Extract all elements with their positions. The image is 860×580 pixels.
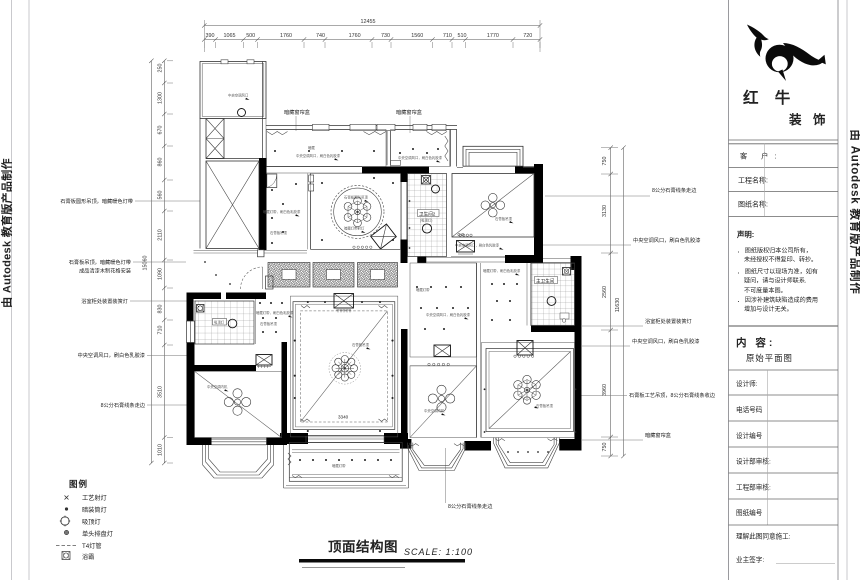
svg-text:8公分石膏线条走边: 8公分石膏线条走边 [652,186,697,194]
svg-text:8公分石膏线条走边: 8公分石膏线条走边 [101,401,146,409]
svg-text:1065: 1065 [224,33,236,39]
svg-text:疑问，请与设计师联系.: 疑问，请与设计师联系. [744,277,807,285]
svg-text:710: 710 [158,326,164,335]
svg-text:500: 500 [246,33,255,39]
svg-text:顶面结构图: 顶面结构图 [328,539,398,555]
svg-text:工艺射灯: 工艺射灯 [82,494,107,502]
svg-text:单头排盘灯: 单头排盘灯 [82,530,113,538]
svg-text:石膏板吊顶，暗藏暖色灯带: 石膏板吊顶，暗藏暖色灯带 [69,258,131,266]
svg-text:原始平面图: 原始平面图 [746,353,793,363]
svg-text:浴室柜处装置装簧灯: 浴室柜处装置装簧灯 [645,317,692,325]
svg-text:图纸名称:: 图纸名称: [738,200,768,209]
svg-text:1770: 1770 [487,33,499,39]
svg-text:暗藏灯带射灯: 暗藏灯带射灯 [344,226,365,231]
svg-text:1010: 1010 [158,444,164,456]
svg-text:石膏板吊顶: 石膏板吊顶 [352,342,370,347]
svg-text:250: 250 [158,64,164,73]
svg-text:卫生间2: 卫生间2 [419,210,436,217]
svg-text:730: 730 [381,33,390,39]
svg-text:中央空调风口，刷白色乳胶漆: 中央空调风口，刷白色乳胶漆 [426,312,471,317]
svg-text:暗藏窗帘盒: 暗藏窗帘盒 [284,108,311,116]
svg-text:工程部审核:: 工程部审核: [736,483,771,492]
svg-text:560: 560 [158,191,164,200]
svg-text:15060: 15060 [143,256,149,271]
svg-text:浴霸: 浴霸 [82,553,94,561]
svg-text:暗装筒灯: 暗装筒灯 [82,506,107,514]
svg-text:石膏板圆形吊顶，暗藏暖色灯带: 石膏板圆形吊顶，暗藏暖色灯带 [60,197,133,205]
svg-text:装 饰: 装 饰 [788,112,829,127]
svg-text:石膏板吊顶: 石膏板吊顶 [260,321,278,326]
svg-text:1090: 1090 [158,268,164,280]
svg-text:1760: 1760 [280,33,292,39]
svg-text:由 Autodesk 教育版产品制作: 由 Autodesk 教育版产品制作 [0,158,14,308]
svg-text:1560: 1560 [411,33,423,39]
svg-text:720: 720 [523,33,532,39]
svg-text:成品清漆木制花格安装: 成品清漆木制花格安装 [79,267,131,275]
svg-text:声明:: 声明: [736,230,754,239]
svg-text:中央空调风口，刷白色乳胶漆: 中央空调风口，刷白色乳胶漆 [296,153,341,158]
svg-text:1300: 1300 [158,92,164,104]
svg-text:． 因涉补建筑缺陷造成的费用: ． 因涉补建筑缺陷造成的费用 [737,296,818,304]
svg-text:750: 750 [602,443,608,452]
svg-text:石膏板吊顶: 石膏板吊顶 [270,230,288,235]
svg-text:暗藏灯带，刷白色乳胶漆: 暗藏灯带，刷白色乳胶漆 [483,268,521,273]
svg-text:中央空调风口，刷白色乳胶漆: 中央空调风口，刷白色乳胶漆 [632,337,699,345]
svg-text:740: 740 [316,33,325,39]
svg-text:12455: 12455 [361,19,376,25]
svg-text:3510: 3510 [158,386,164,398]
svg-text:内 容:: 内 容: [736,336,775,349]
svg-text:暗藏灯带: 暗藏灯带 [332,463,346,468]
svg-text:中央空调风口，刷白色乳胶漆: 中央空调风口，刷白色乳胶漆 [398,155,443,160]
svg-text:业主签字:: 业主签字: [736,555,764,564]
svg-text:中央空调内机: 中央空调内机 [207,384,228,389]
svg-text:由 Autodesk 教育版产品制作: 由 Autodesk 教育版产品制作 [849,129,860,294]
svg-text:1760: 1760 [349,33,361,39]
svg-text:设计编号: 设计编号 [736,431,763,440]
svg-text:2560: 2560 [602,286,608,298]
svg-text:510: 510 [458,33,467,39]
svg-text:860: 860 [158,158,164,167]
svg-text:工程名称:: 工程名称: [738,176,768,185]
svg-text:图例: 图例 [69,479,88,489]
svg-text:11630: 11630 [615,298,621,313]
svg-text:吸顶灯: 吸顶灯 [82,518,101,526]
svg-text:8公分石膏线条走边: 8公分石膏线条走边 [448,502,493,510]
svg-text:390: 390 [206,33,215,39]
svg-text:2110: 2110 [158,229,164,241]
svg-text:SCALE: 1:100: SCALE: 1:100 [404,547,473,557]
svg-text:． 图纸版权归本公司所有，: ． 图纸版权归本公司所有， [737,247,812,255]
svg-text:中央空调风口: 中央空调风口 [228,93,248,98]
svg-text:暗藏灯带，刷白色乳胶漆: 暗藏灯带，刷白色乳胶漆 [256,310,294,315]
svg-text:增加与设计无关。: 增加与设计无关。 [744,305,793,313]
svg-text:． 图纸尺寸以现场为准，如有: ． 图纸尺寸以现场为准，如有 [737,268,818,276]
svg-text:主卫生间: 主卫生间 [536,277,555,284]
svg-text:670: 670 [158,126,164,135]
svg-text:暗藏灯带: 暗藏灯带 [416,287,430,292]
svg-text:电话号码: 电话号码 [736,405,763,414]
svg-text:客 户:: 客 户: [740,152,782,161]
svg-text:T4灯管: T4灯管 [82,542,102,550]
svg-text:中央空调风口，刷白色乳胶漆: 中央空调风口，刷白色乳胶漆 [78,351,145,359]
svg-text:3340: 3340 [338,415,349,420]
svg-text:石膏板圆形吊顶: 石膏板圆形吊顶 [344,195,368,200]
svg-text:不可度量本图。: 不可度量本图。 [744,287,787,295]
svg-text:设计部审核:: 设计部审核: [736,457,771,466]
svg-text:中央空调风口，刷白色乳胶漆: 中央空调风口，刷白色乳胶漆 [633,236,700,244]
svg-text:图纸编号: 图纸编号 [736,508,763,517]
svg-text:暗藏窗帘盒: 暗藏窗帘盒 [396,108,423,116]
svg-text:3960: 3960 [602,384,608,396]
svg-text:红 牛: 红 牛 [743,88,796,107]
svg-text:吸顶灯: 吸顶灯 [214,319,225,324]
svg-text:(吸顶灯): (吸顶灯) [420,218,432,223]
svg-text:3130: 3130 [602,205,608,217]
svg-text:未经授权不得复印、转抄。: 未经授权不得复印、转抄。 [744,256,817,264]
svg-text:830: 830 [158,305,164,314]
svg-text:暗藏窗帘盒: 暗藏窗帘盒 [645,431,672,439]
svg-text:暗藏灯带，刷白色乳胶漆: 暗藏灯带，刷白色乳胶漆 [263,209,301,214]
svg-text:710: 710 [443,33,452,39]
svg-text:设计师:: 设计师: [736,379,758,388]
svg-text:暗藏: 暗藏 [308,145,315,150]
svg-text:750: 750 [602,157,608,166]
svg-text:中央空调风口，刷白色乳胶漆: 中央空调风口，刷白色乳胶漆 [455,243,500,248]
svg-text:石膏板工艺吊顶，8公分石膏线条收边: 石膏板工艺吊顶，8公分石膏线条收边 [629,391,716,399]
svg-text:理解此图同意施工:: 理解此图同意施工: [736,532,791,541]
svg-text:浴室柜处装置装簧灯: 浴室柜处装置装簧灯 [81,297,128,305]
svg-text:中央空调内机: 中央空调内机 [424,408,445,413]
svg-text:石膏板吊顶: 石膏板吊顶 [495,216,513,221]
svg-text:石膏板吊顶: 石膏板吊顶 [536,403,554,408]
